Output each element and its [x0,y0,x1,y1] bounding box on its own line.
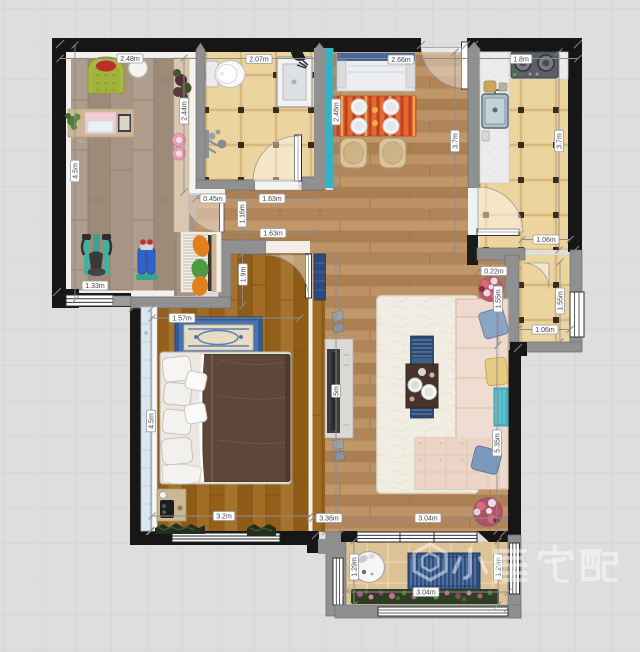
svg-text:1.55m: 1.55m [558,291,565,311]
svg-text:1.06m: 1.06m [536,237,556,244]
svg-text:5m: 5m [334,386,341,396]
svg-text:3.04m: 3.04m [416,590,436,597]
svg-text:3.04m: 3.04m [418,516,438,523]
svg-text:1.63m: 1.63m [262,196,282,203]
svg-text:1.8m: 1.8m [513,57,529,64]
svg-text:2.44m: 2.44m [182,101,189,121]
svg-text:1.57m: 1.57m [172,316,192,323]
svg-text:1.29m: 1.29m [352,557,359,577]
svg-text:4.5m: 4.5m [73,163,80,179]
svg-text:4.5m: 4.5m [149,413,156,429]
svg-text:2.48m: 2.48m [120,56,140,63]
svg-text:1.33m: 1.33m [85,283,105,290]
svg-text:3.7m: 3.7m [557,133,564,149]
svg-text:1.9m: 1.9m [241,267,248,283]
svg-text:3.7m: 3.7m [453,133,460,149]
svg-text:2.66m: 2.66m [391,57,411,64]
svg-text:1.63m: 1.63m [263,231,283,238]
svg-text:0.22m: 0.22m [484,269,504,276]
svg-text:3.2m: 3.2m [216,514,232,521]
svg-text:1.06m: 1.06m [535,327,555,334]
svg-text:2.07m: 2.07m [249,57,269,64]
svg-text:1.16m: 1.16m [240,204,247,224]
svg-text:1.55m: 1.55m [496,289,503,309]
svg-text:2.48m: 2.48m [334,102,341,122]
svg-text:0.45m: 0.45m [203,196,223,203]
svg-text:3.36m: 3.36m [319,516,339,523]
svg-text:5.35m: 5.35m [495,433,502,453]
